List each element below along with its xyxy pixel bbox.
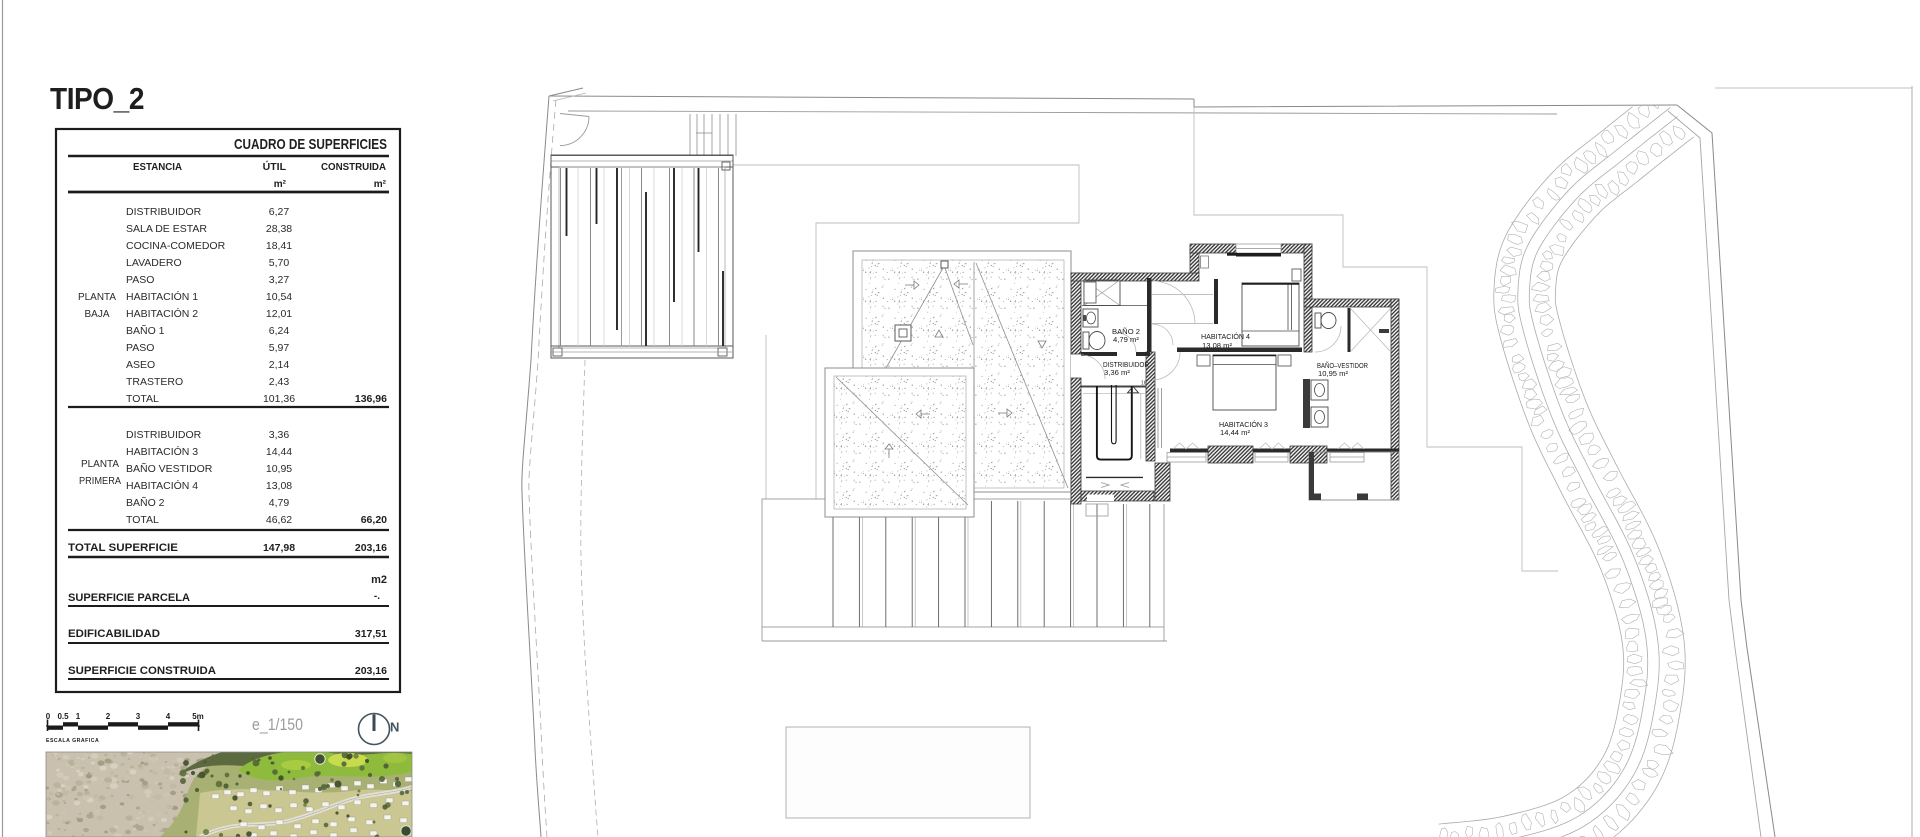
svg-text:TOTAL SUPERFICIE: TOTAL SUPERFICIE — [68, 542, 178, 554]
svg-text:SUPERFICIE CONSTRUIDA: SUPERFICIE CONSTRUIDA — [68, 665, 216, 677]
svg-text:4,79 m²: 4,79 m² — [1113, 335, 1140, 344]
svg-text:m2: m2 — [371, 574, 387, 586]
svg-text:10,95 m²: 10,95 m² — [1318, 369, 1349, 378]
svg-text:0.5: 0.5 — [57, 712, 69, 721]
svg-text:BAÑO 1: BAÑO 1 — [126, 324, 165, 337]
svg-text:2: 2 — [106, 712, 111, 721]
svg-text:-.: -. — [374, 591, 380, 602]
svg-text:SUPERFICIE PARCELA: SUPERFICIE PARCELA — [68, 592, 190, 604]
svg-text:ESCALA GRAFICA: ESCALA GRAFICA — [46, 738, 99, 744]
svg-text:BAJA: BAJA — [85, 308, 110, 320]
svg-text:TOTAL: TOTAL — [126, 514, 159, 526]
svg-text:PASO: PASO — [126, 274, 154, 286]
svg-text:28,38: 28,38 — [266, 223, 292, 235]
svg-text:DISTRIBUIDOR: DISTRIBUIDOR — [126, 429, 202, 441]
svg-text:HABITACIÓN 1: HABITACIÓN 1 — [126, 290, 198, 303]
svg-text:BAÑO VESTIDOR: BAÑO VESTIDOR — [126, 462, 213, 475]
svg-text:13,08: 13,08 — [266, 480, 292, 492]
svg-text:10,54: 10,54 — [266, 291, 292, 303]
svg-text:3: 3 — [136, 712, 141, 721]
svg-text:3,36: 3,36 — [269, 429, 290, 441]
svg-text:18,41: 18,41 — [266, 240, 292, 252]
svg-text:203,16: 203,16 — [355, 665, 387, 677]
svg-text:CONSTRUIDA: CONSTRUIDA — [321, 161, 386, 173]
svg-text:HABITACIÓN 3: HABITACIÓN 3 — [126, 445, 198, 458]
svg-text:TOTAL: TOTAL — [126, 393, 159, 405]
svg-text:46,62: 46,62 — [266, 514, 292, 526]
svg-text:147,98: 147,98 — [263, 542, 295, 554]
svg-text:12,01: 12,01 — [266, 308, 292, 320]
svg-text:ASEO: ASEO — [126, 359, 155, 371]
svg-text:10,95: 10,95 — [266, 463, 292, 475]
svg-text:EDIFICABILIDAD: EDIFICABILIDAD — [68, 628, 160, 640]
svg-text:LAVADERO: LAVADERO — [126, 257, 182, 269]
svg-text:3,36 m²: 3,36 m² — [1104, 368, 1131, 377]
svg-text:14,44 m²: 14,44 m² — [1220, 428, 1251, 437]
svg-text:13,08 m²: 13,08 m² — [1202, 341, 1233, 350]
svg-text:101,36: 101,36 — [263, 393, 295, 405]
svg-text:m²: m² — [374, 179, 387, 190]
svg-text:16: 16 — [1141, 381, 1147, 387]
svg-text:5,97: 5,97 — [269, 342, 290, 354]
svg-text:136,96: 136,96 — [355, 393, 387, 405]
svg-text:2,14: 2,14 — [269, 359, 290, 371]
svg-text:6,24: 6,24 — [269, 325, 290, 337]
svg-text:6,27: 6,27 — [269, 206, 290, 218]
svg-text:HABITACIÓN 2: HABITACIÓN 2 — [126, 307, 198, 320]
svg-text:317,51: 317,51 — [355, 628, 387, 640]
svg-text:14,44: 14,44 — [266, 446, 292, 458]
svg-text:DISTRIBUIDOR: DISTRIBUIDOR — [126, 206, 202, 218]
svg-text:PLANTA: PLANTA — [81, 458, 119, 470]
svg-text:3,27: 3,27 — [269, 274, 290, 286]
svg-text:COCINA-COMEDOR: COCINA-COMEDOR — [126, 240, 226, 252]
svg-text:1: 1 — [76, 712, 81, 721]
svg-text:2,43: 2,43 — [269, 376, 290, 388]
svg-text:TRASTERO: TRASTERO — [126, 376, 183, 388]
svg-text:TIPO_2: TIPO_2 — [50, 81, 144, 116]
svg-text:PLANTA: PLANTA — [78, 291, 116, 303]
svg-text:ESTANCIA: ESTANCIA — [133, 161, 182, 173]
svg-text:CUADRO DE SUPERFICIES: CUADRO DE SUPERFICIES — [234, 136, 387, 153]
svg-text:e_1/150: e_1/150 — [252, 715, 303, 734]
svg-text:PRIMERA: PRIMERA — [79, 475, 121, 487]
svg-text:HABITACIÓN 4: HABITACIÓN 4 — [126, 479, 198, 492]
svg-text:66,20: 66,20 — [361, 514, 387, 526]
svg-text:BAÑO 2: BAÑO 2 — [126, 496, 165, 509]
svg-text:4: 4 — [166, 712, 171, 721]
svg-text:N: N — [390, 720, 399, 735]
svg-text:203,16: 203,16 — [355, 542, 387, 554]
svg-text:m²: m² — [274, 179, 287, 190]
svg-text:PASO: PASO — [126, 342, 154, 354]
svg-text:ÚTIL: ÚTIL — [263, 160, 287, 173]
svg-text:4,79: 4,79 — [269, 497, 290, 509]
svg-text:HABITACIÓN 4: HABITACIÓN 4 — [1201, 332, 1250, 341]
svg-text:5,70: 5,70 — [269, 257, 290, 269]
svg-text:SALA DE ESTAR: SALA DE ESTAR — [126, 223, 207, 235]
